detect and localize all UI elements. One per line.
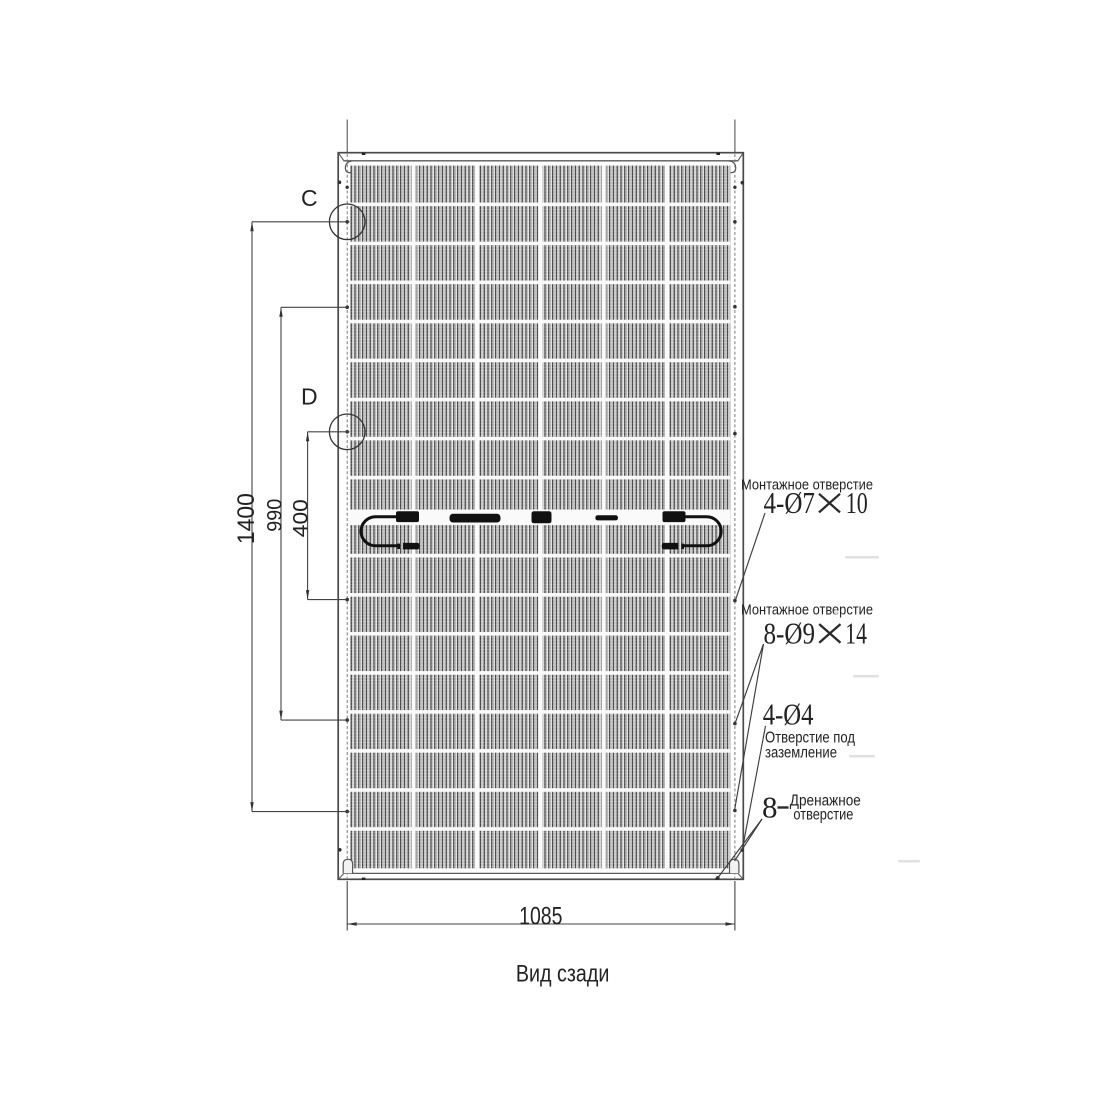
- svg-text:400: 400: [289, 499, 313, 537]
- svg-text:заземление: заземление: [765, 745, 837, 762]
- svg-text:4-Ø7: 4-Ø7: [764, 485, 815, 520]
- svg-text:C: C: [301, 185, 318, 211]
- svg-text:14: 14: [845, 616, 867, 651]
- svg-text:D: D: [301, 384, 318, 410]
- svg-text:1085: 1085: [519, 902, 562, 930]
- svg-text:Вид сзади: Вид сзади: [516, 960, 609, 987]
- svg-text:990: 990: [263, 499, 286, 532]
- svg-text:8-Ø9: 8-Ø9: [764, 616, 816, 651]
- svg-text:1400: 1400: [233, 493, 260, 544]
- svg-text:4-Ø4: 4-Ø4: [763, 697, 814, 732]
- svg-text:10: 10: [846, 485, 868, 520]
- svg-text:отверстие: отверстие: [793, 807, 853, 824]
- svg-text:8: 8: [762, 790, 778, 825]
